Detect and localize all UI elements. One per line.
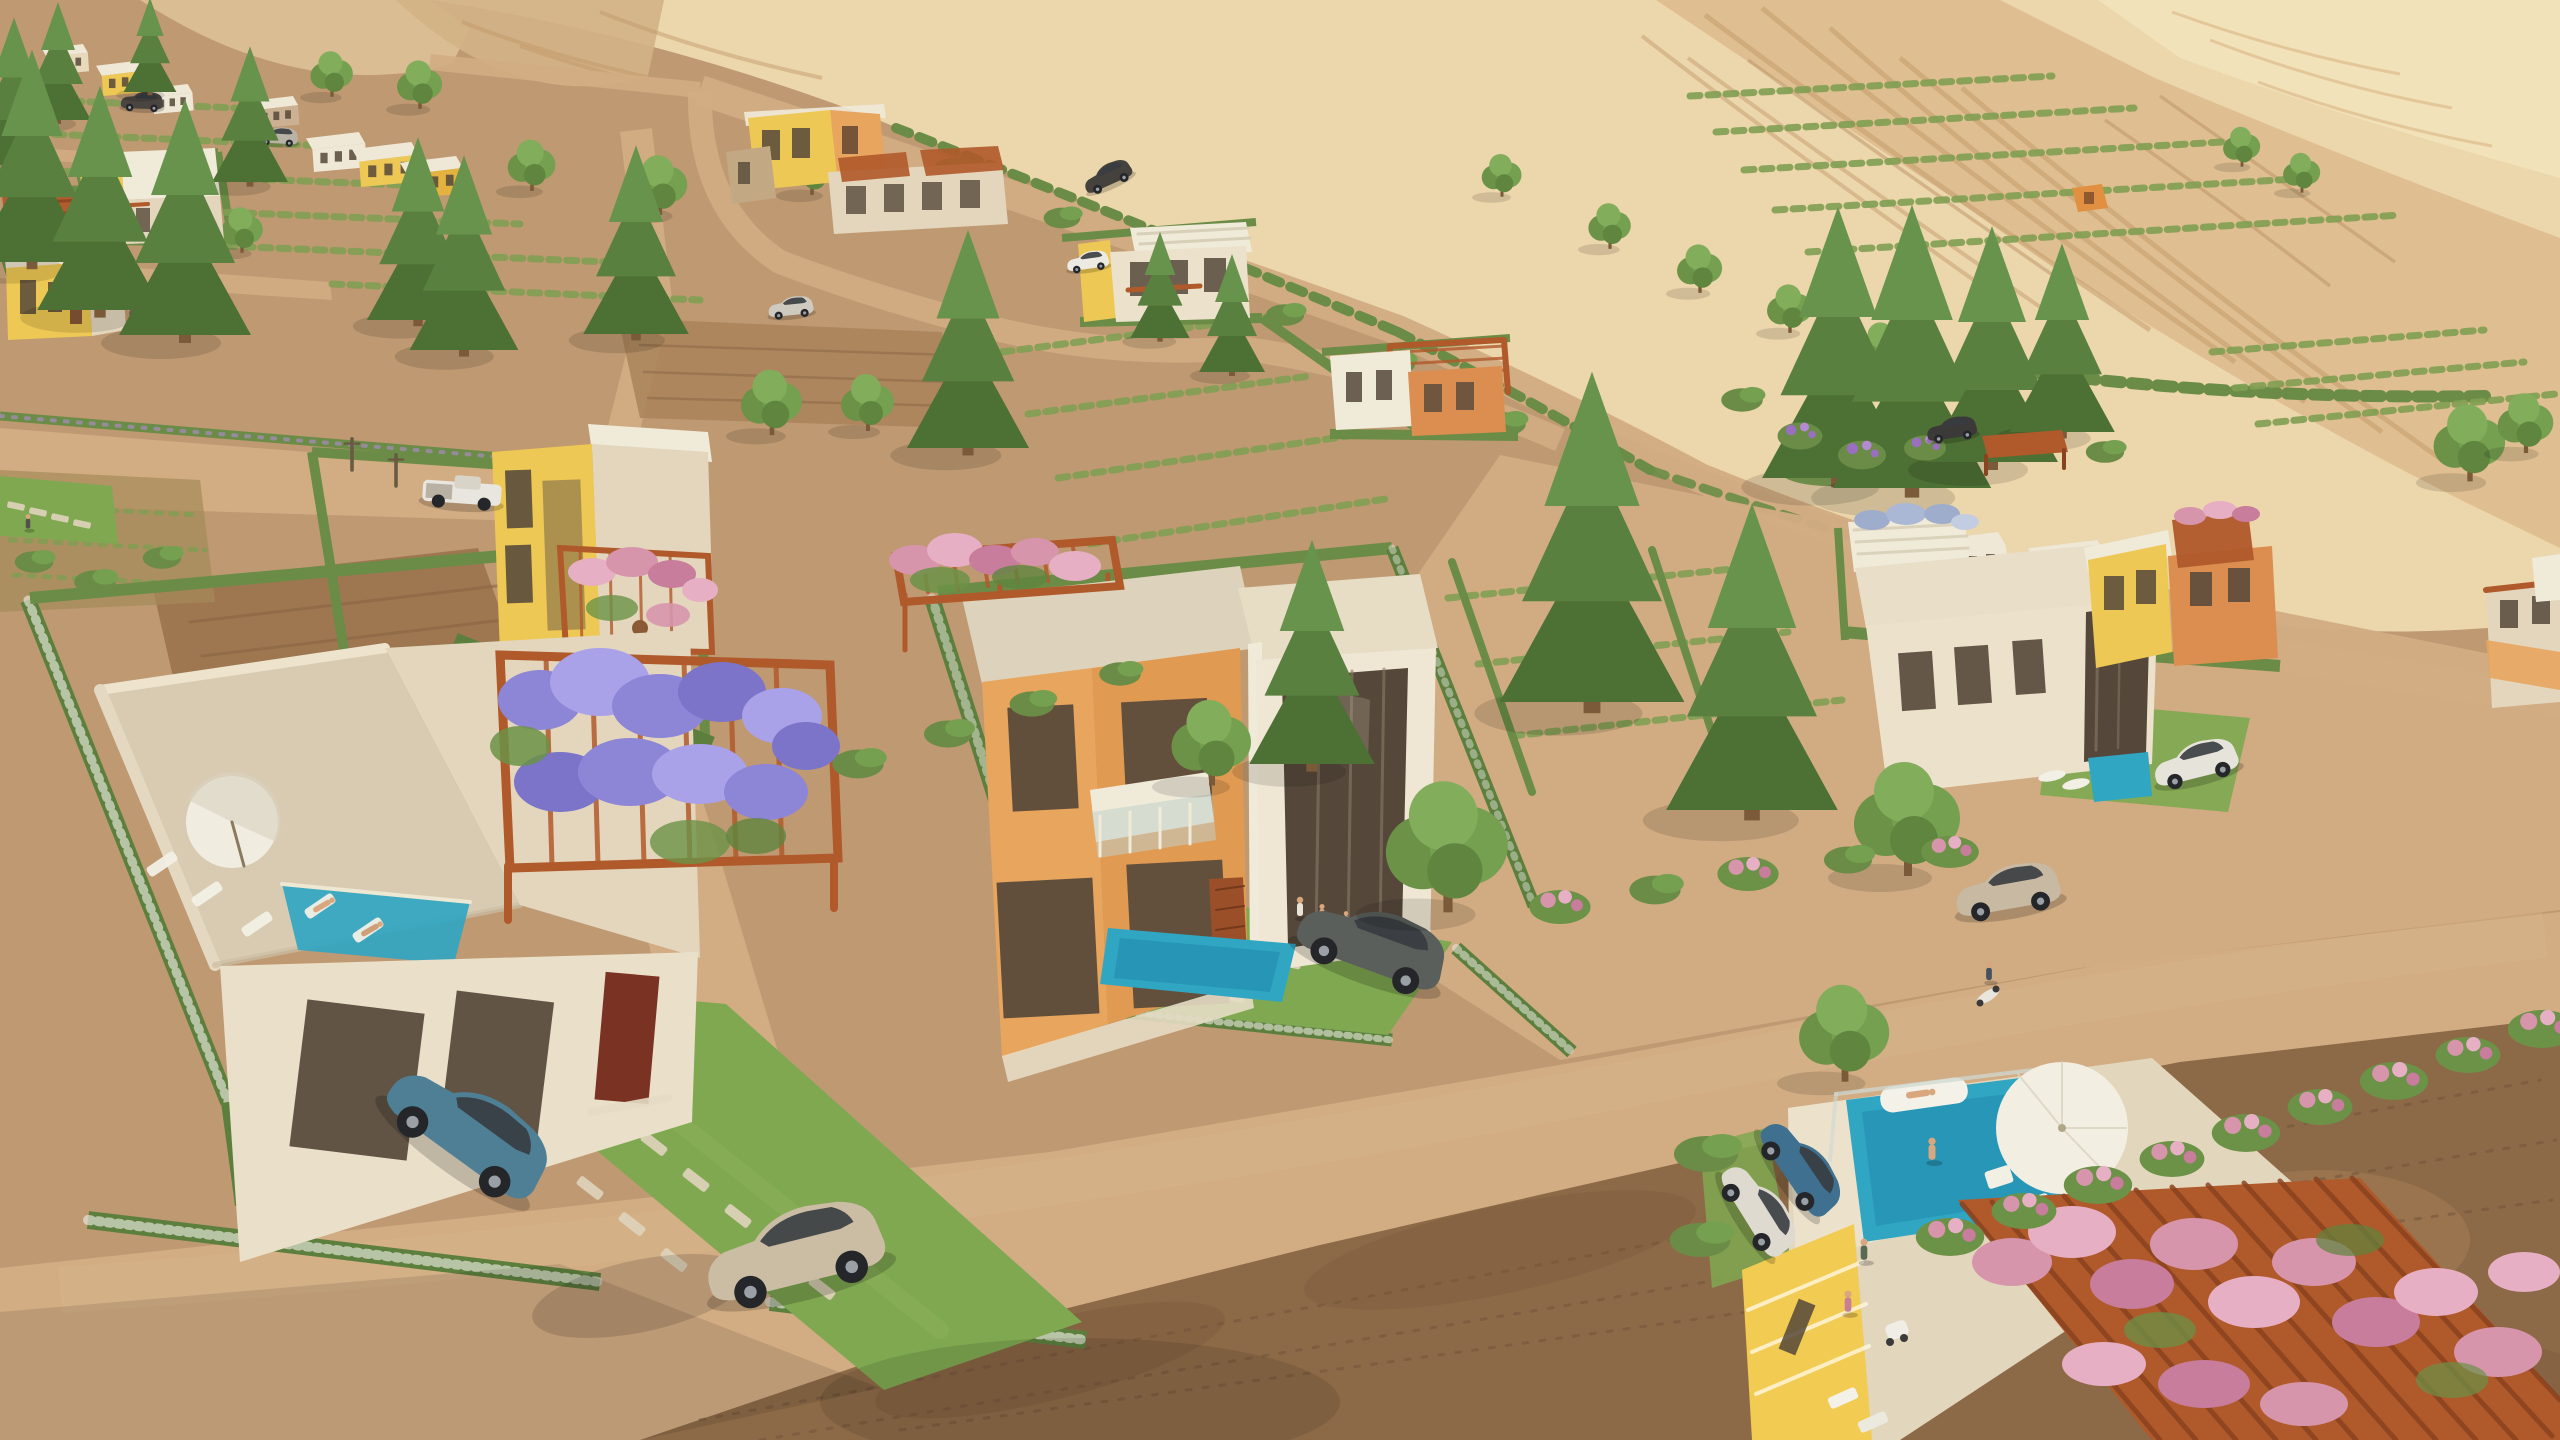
bush <box>1266 303 1307 326</box>
bush <box>924 719 975 748</box>
tree <box>496 140 555 199</box>
fbush <box>1916 1218 1984 1256</box>
fbush <box>2288 1089 2353 1125</box>
desert-villa-development-render <box>0 0 2560 1440</box>
pbush <box>1838 441 1886 470</box>
fbush <box>1921 836 1979 868</box>
stone <box>576 1175 605 1201</box>
fbush <box>1529 890 1590 924</box>
fbush <box>1717 857 1778 891</box>
bush <box>832 748 886 778</box>
aerial-render-viewport <box>0 0 2560 1440</box>
fbush <box>1992 1193 2057 1229</box>
fbush <box>2436 1037 2501 1073</box>
car <box>766 294 817 322</box>
fbush <box>2360 1062 2428 1100</box>
pbush <box>1778 423 1823 450</box>
fbush <box>2212 1114 2280 1152</box>
fbush <box>2064 1166 2132 1204</box>
fbush <box>2140 1141 2205 1177</box>
